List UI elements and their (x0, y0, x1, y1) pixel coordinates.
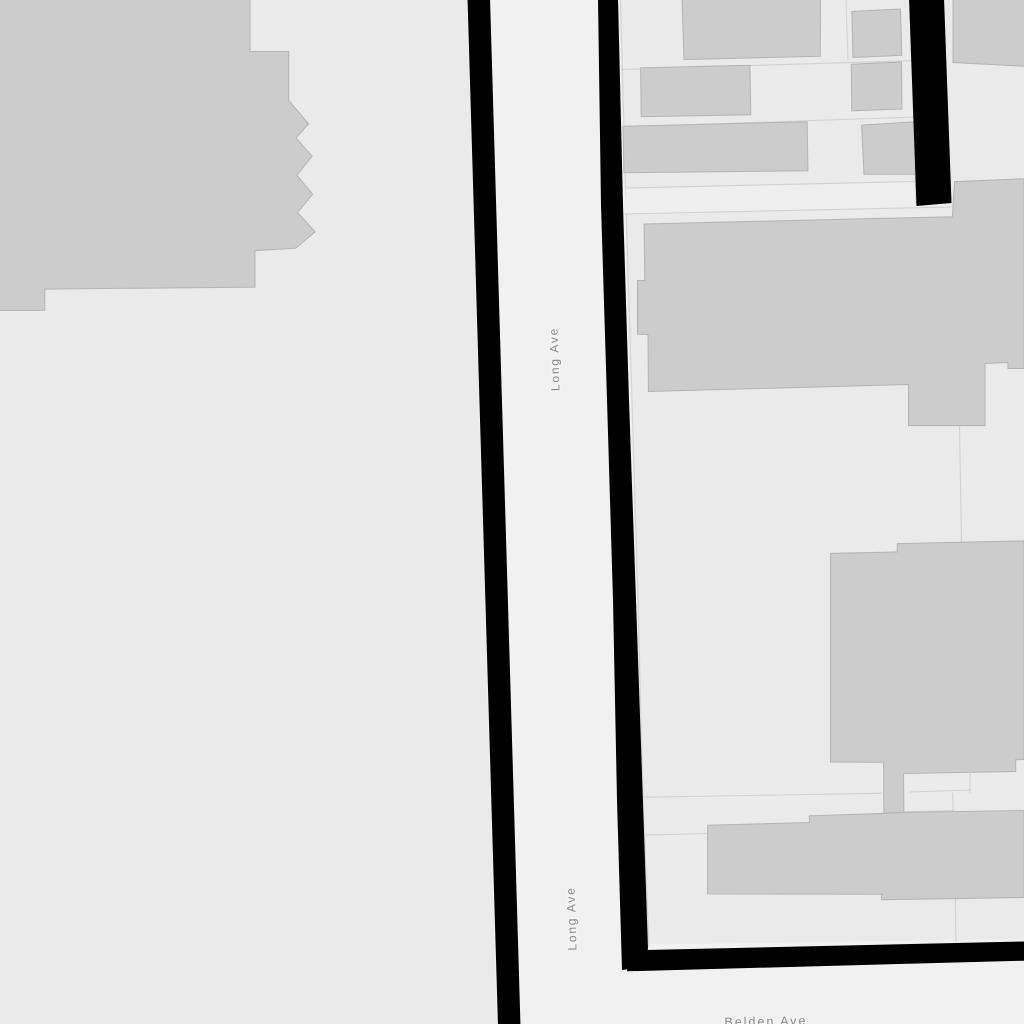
svg-text:Long Ave: Long Ave (564, 886, 580, 951)
svg-text:Belden Ave: Belden Ave (724, 1014, 807, 1024)
svg-text:Long Ave: Long Ave (547, 327, 563, 392)
